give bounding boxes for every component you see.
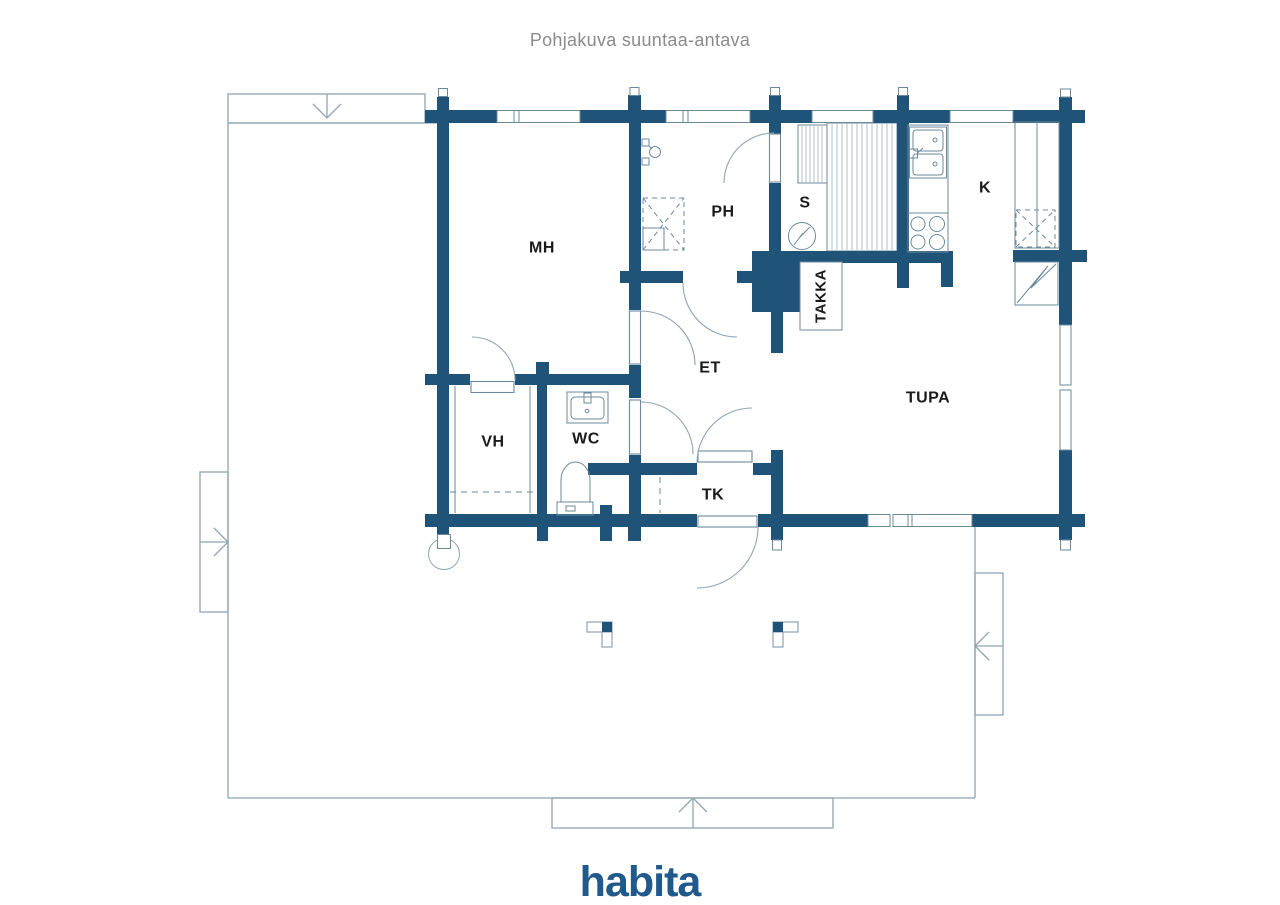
terrace-post bbox=[773, 622, 798, 647]
door-leaf-wc bbox=[630, 400, 641, 454]
kitchen-counter bbox=[908, 125, 948, 252]
floor-plan-page: Pohjakuva suuntaa-antava bbox=[0, 0, 1280, 905]
plan-title: Pohjakuva suuntaa-antava bbox=[0, 30, 1280, 51]
room-label-tk: TK bbox=[702, 487, 724, 504]
terrace-right-stair bbox=[975, 573, 1003, 715]
window bbox=[666, 111, 750, 123]
window bbox=[1060, 390, 1071, 450]
room-label-vh: VH bbox=[481, 434, 504, 451]
kitchen-stove-symbol bbox=[908, 213, 948, 252]
room-label-s: S bbox=[799, 195, 810, 212]
door-leaf-vh bbox=[471, 382, 514, 393]
room-label-mh: MH bbox=[529, 240, 555, 257]
window bbox=[1060, 325, 1071, 385]
room-label-k: K bbox=[979, 180, 991, 197]
water-heater-symbol bbox=[1015, 262, 1058, 305]
door-swing-sauna bbox=[724, 133, 774, 183]
shower-symbol bbox=[642, 139, 684, 250]
habita-logo: habita bbox=[0, 858, 1280, 905]
room-label-ph: PH bbox=[711, 204, 734, 221]
shower-mixer-icon bbox=[642, 139, 661, 165]
door-swing-mh bbox=[641, 311, 695, 365]
fridge-closet-symbol bbox=[1015, 122, 1059, 248]
window bbox=[812, 111, 873, 123]
floor-plan-canvas: MH PH S K TAKKA ET TUPA VH WC TK bbox=[0, 0, 1280, 905]
window bbox=[893, 515, 972, 527]
chimney-symbol bbox=[429, 535, 460, 570]
terrace-posts bbox=[587, 622, 798, 647]
room-label-takka: TAKKA bbox=[813, 269, 830, 323]
terrace-left-stair bbox=[200, 472, 228, 612]
door-leaf-tk-inner bbox=[698, 451, 752, 462]
sauna-stove-symbol bbox=[789, 223, 816, 250]
door-leaf-tk-outer bbox=[698, 516, 757, 527]
door-leaf-sauna bbox=[770, 134, 781, 182]
room-label-tupa: TUPA bbox=[906, 390, 950, 407]
walls bbox=[425, 95, 1087, 541]
toilet-symbol bbox=[557, 462, 593, 515]
door-swing-ph bbox=[683, 283, 737, 337]
fixtures bbox=[429, 122, 1060, 570]
window bbox=[950, 111, 1013, 123]
log-wall-ends bbox=[439, 88, 1071, 551]
room-label-et: ET bbox=[699, 360, 720, 377]
terrace-bottom-stair bbox=[552, 798, 833, 828]
door-swing-tk-outer bbox=[697, 527, 758, 588]
door-swing-wc bbox=[641, 402, 693, 454]
kitchen-sink-symbol bbox=[910, 127, 947, 178]
fireplace bbox=[752, 251, 800, 353]
wc-sink-symbol bbox=[567, 392, 608, 423]
window bbox=[868, 515, 890, 527]
door-swing-vh bbox=[472, 337, 515, 380]
door-leaf-mh bbox=[630, 311, 641, 364]
sauna-benches bbox=[798, 123, 897, 251]
terrace-post bbox=[587, 622, 612, 647]
window bbox=[497, 111, 580, 123]
room-label-wc: WC bbox=[572, 431, 600, 448]
